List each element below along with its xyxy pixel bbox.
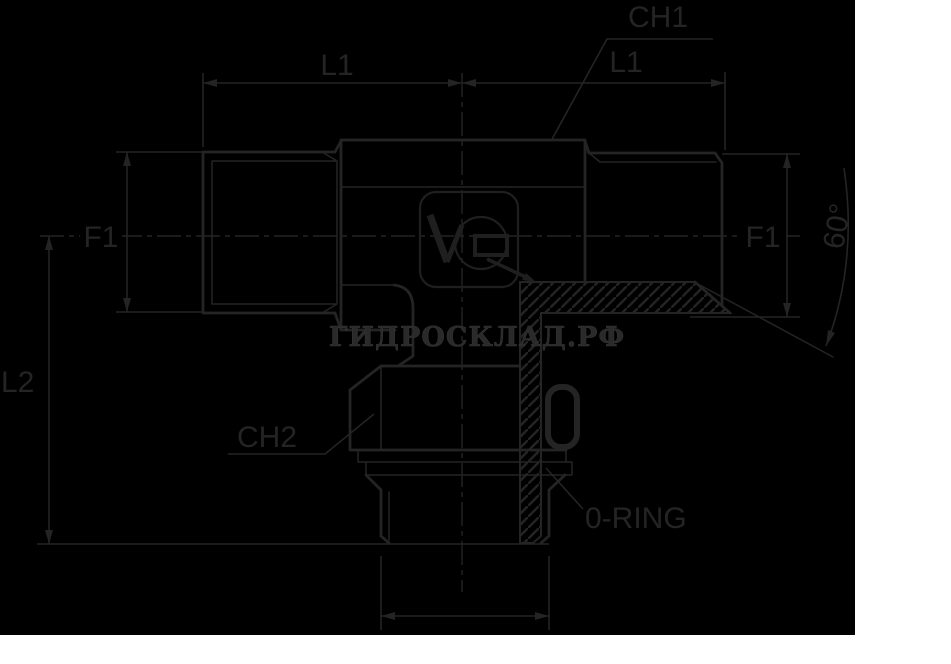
label-ch2: CH2: [237, 421, 297, 454]
label-ch1: CH1: [628, 1, 688, 34]
label-l2: L2: [1, 366, 34, 399]
label-l1-right: L1: [609, 46, 642, 79]
label-f1-right: F1: [745, 221, 780, 254]
label-o-ring: 0-RING: [585, 502, 687, 535]
watermark-text: ГИДРОСКЛАД.РФ: [329, 322, 625, 353]
label-f1-left: F1: [83, 221, 118, 254]
technical-drawing-page: L1 L1 CH1 F1 F1 L2 CH2 0-RING 60° ГИДРОС…: [0, 0, 951, 664]
label-l1-left: L1: [320, 49, 353, 82]
tee-fitting-drawing: L1 L1 CH1 F1 F1 L2 CH2 0-RING 60° ГИДРОС…: [0, 0, 951, 664]
